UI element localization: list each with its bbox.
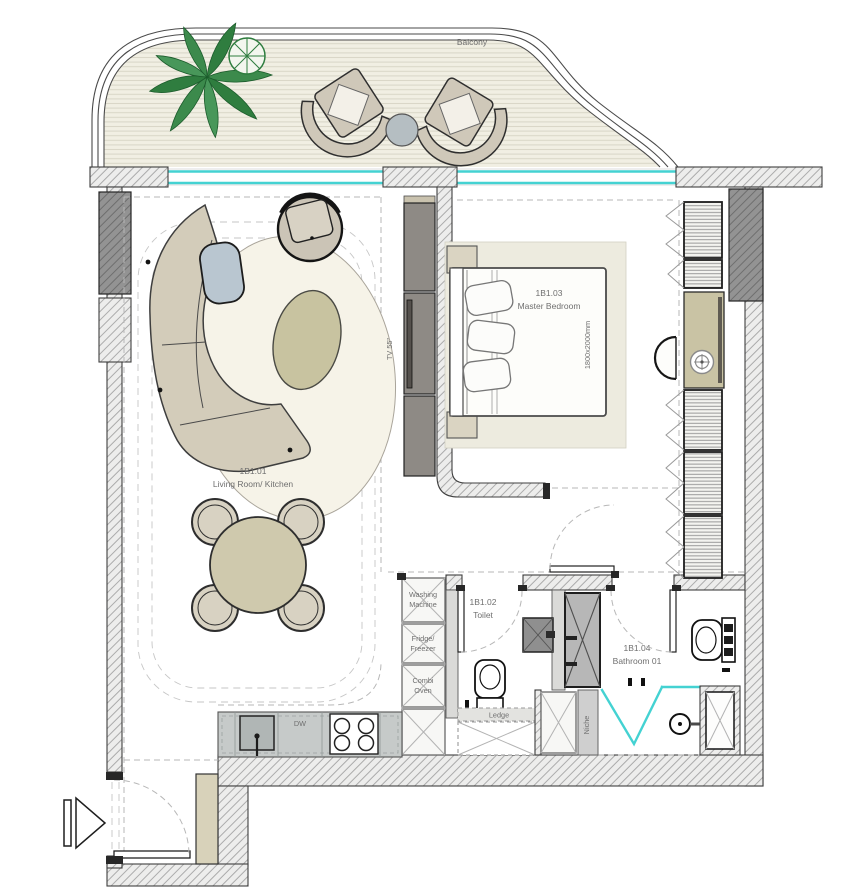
fridge-freezer-box: Fridge/ Freezer [402, 624, 445, 663]
fridge-freezer-label: Freezer [410, 644, 436, 653]
basin [523, 618, 555, 652]
wall [676, 167, 822, 187]
toilet-code: 1B1.02 [470, 597, 497, 607]
fridge-freezer-label: Fridge/ [412, 634, 436, 643]
floor-plan: Balcony [0, 0, 849, 895]
wall [90, 167, 168, 187]
exterior-walls-top [90, 167, 822, 187]
wardrobe-door-swing-icon [666, 202, 684, 578]
entry-cabinet [196, 774, 218, 864]
kitchen-counter: DW [218, 712, 402, 757]
niche-unit: Niche [535, 690, 598, 755]
bathroom-name: Bathroom 01 [613, 656, 662, 666]
wall-bottom [218, 755, 763, 786]
armchair [278, 195, 342, 261]
bathroom-door [606, 585, 681, 652]
living-room: 1B1.01 Living Room/ Kitchen TV 55" [146, 195, 410, 631]
ledge-label: Ledge [489, 711, 509, 720]
dining-table [210, 517, 306, 613]
balcony-table [386, 114, 418, 146]
sink [240, 716, 274, 756]
living-room-name: Living Room/ Kitchen [213, 479, 294, 489]
door-swing [114, 780, 189, 855]
dishwasher-label: DW [294, 719, 306, 728]
dining-set [192, 499, 324, 631]
stove [330, 714, 378, 754]
bedroom-name: Master Bedroom [518, 301, 581, 311]
pillow [462, 357, 511, 392]
door-leaf [114, 851, 190, 858]
ledge: Ledge [458, 708, 540, 721]
wall-pier [99, 298, 131, 362]
master-bedroom: 1B1.03 Master Bedroom 1800x2000mm [445, 202, 724, 578]
entry [64, 772, 218, 864]
balcony-label: Balcony [457, 37, 488, 47]
tv-cabinet [404, 196, 435, 476]
door-leaf [670, 590, 676, 652]
door-leaf [458, 590, 464, 652]
door-swing [550, 505, 614, 569]
washing-machine-box: Washing Machine [402, 578, 445, 622]
wardrobe [666, 202, 722, 578]
combi-oven-label: Oven [414, 686, 431, 695]
vanity-chair [655, 337, 676, 379]
column [729, 189, 763, 301]
floor-plan-page: Balcony [0, 0, 849, 895]
vanity [655, 292, 724, 388]
wall-bottom-entry [107, 864, 248, 886]
bathroom-toilet-fixture [692, 618, 735, 672]
bed-dimension: 1800x2000mm [583, 321, 592, 369]
column [99, 192, 131, 294]
living-room-code: 1B1.01 [240, 466, 267, 476]
bathroom-shaft [700, 686, 740, 755]
wall-basin [552, 590, 565, 690]
base-cabinet-box [402, 709, 445, 755]
wall [535, 690, 541, 755]
washing-machine-label: Machine [409, 600, 437, 609]
wall [523, 575, 612, 590]
counter-unit [458, 722, 535, 755]
washing-machine-label: Washing [409, 590, 437, 599]
bedroom-code: 1B1.03 [536, 288, 563, 298]
bedroom-door [543, 483, 619, 578]
bathroom: 1B1.04 Bathroom 01 [602, 585, 740, 755]
wall-toilet [446, 590, 458, 718]
shower [602, 678, 704, 744]
tv-screen [407, 300, 412, 388]
wall-step [218, 786, 248, 866]
toilet-name: Toilet [473, 610, 493, 620]
vanity-mirror [718, 297, 722, 383]
bathroom-code: 1B1.04 [624, 643, 651, 653]
wall [383, 167, 457, 187]
toilet-fixture [465, 660, 505, 712]
appliance-stack: Washing Machine Fridge/ Freezer Combi Ov… [397, 573, 445, 755]
shaft [565, 593, 600, 687]
tv-label: TV 55" [385, 338, 394, 360]
door-leaf [550, 566, 614, 572]
side-table [198, 241, 246, 306]
pillow [466, 319, 515, 354]
shower-glass [602, 687, 662, 744]
niche-label: Niche [582, 716, 591, 735]
combi-oven-label: Combi [412, 676, 433, 685]
balcony: Balcony [92, 21, 678, 176]
combi-oven-box: Combi Oven [402, 665, 445, 707]
entry-door [106, 772, 190, 864]
entry-arrow-icon [64, 798, 105, 848]
